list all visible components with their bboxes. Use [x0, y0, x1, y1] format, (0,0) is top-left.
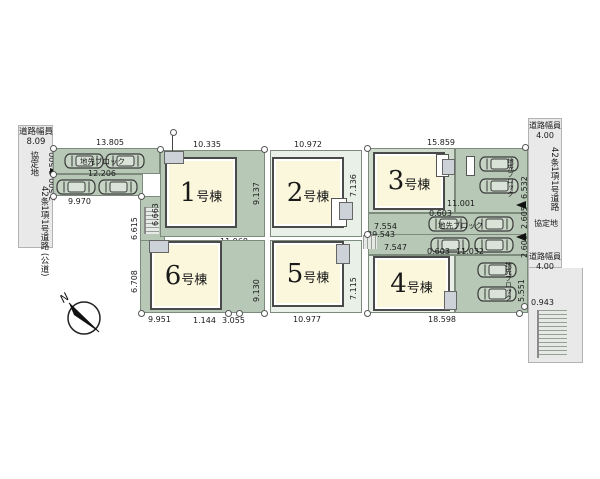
building-5-label: 5 号棟 [287, 261, 330, 287]
road-width-text: 道路幅員 [529, 252, 561, 261]
dim-park-top: 13.805 [96, 139, 124, 147]
survey-point [261, 310, 268, 317]
road-width-text: 道路幅員 [19, 127, 53, 137]
building-6-label: 6 号棟 [165, 263, 208, 289]
dim-3055: 3.055 [222, 317, 245, 325]
building-1: 1 号棟 [165, 157, 237, 228]
building-1-label: 1 号棟 [180, 180, 223, 206]
dim-9130: 9.130 [253, 272, 261, 302]
survey-point [138, 193, 145, 200]
dim-1144: 1.144 [193, 317, 216, 325]
building-3: 3 号棟 [373, 152, 445, 210]
building-1-porch [164, 151, 184, 164]
dim-park-bottom: 9.970 [68, 198, 91, 206]
dim-11001: 11.001 [447, 200, 475, 208]
building-5: 5 号棟 [272, 241, 344, 307]
dim-lot3-top: 15.859 [427, 139, 455, 147]
building-6-suffix: 号棟 [181, 274, 207, 287]
dim-6663: 6.663 [152, 196, 160, 226]
building-5-number: 5 [287, 261, 304, 287]
dim-park-mid: 12.206 [88, 170, 116, 178]
block-label-park: 地先ブロック [80, 158, 125, 166]
car-icon [479, 154, 519, 174]
road-left-name-suffix: (公道) [39, 253, 49, 277]
dim-lot2-top: 10.972 [294, 141, 322, 149]
stairs-hatch-right [537, 310, 567, 358]
compass-icon: N [58, 288, 106, 340]
building-3-step [442, 159, 455, 175]
dim-6532: 6.532 [521, 155, 529, 199]
survey-point [261, 146, 268, 153]
survey-point [521, 303, 528, 310]
utility-pole-top [170, 129, 177, 136]
building-1-number: 1 [180, 180, 197, 206]
building-4-label: 4 号棟 [390, 271, 433, 297]
dim-6615: 6.615 [131, 210, 139, 240]
building-6-porch [149, 240, 169, 253]
building-3-number: 3 [388, 168, 405, 194]
building-4-step [444, 291, 457, 310]
building-2-label: 2 号棟 [287, 180, 330, 206]
building-6-number: 6 [165, 263, 182, 289]
dim-7136: 7.136 [350, 165, 358, 197]
dim-lot5-bottom: 10.977 [293, 316, 321, 324]
dim-0603-a: 0.603 [429, 210, 452, 218]
dim-6708: 6.708 [131, 257, 139, 293]
road-width-text: 道路幅員 [529, 121, 561, 130]
car-icon [477, 260, 517, 280]
block-label-right-bottom: 地先ブロック [503, 262, 510, 301]
building-3-label: 3 号棟 [388, 168, 431, 194]
car-icon [56, 178, 96, 196]
dim-lot4-bottom: 18.598 [428, 316, 456, 324]
shed-outline [466, 156, 475, 176]
road-right-name: 42条1項1号道路 [534, 147, 558, 219]
boundary-arrow-icon [516, 233, 526, 241]
survey-point [50, 193, 57, 200]
survey-point [157, 146, 164, 153]
building-5-step [336, 244, 350, 264]
building-3-suffix: 号棟 [404, 179, 430, 192]
dim-9137: 9.137 [253, 175, 261, 205]
building-5-suffix: 号棟 [303, 272, 329, 285]
building-1-suffix: 号棟 [196, 191, 222, 204]
dim-7115: 7.115 [350, 268, 358, 300]
road-left-name: 42条1項1号道路 (公道) [22, 186, 48, 258]
building-2-suffix: 号棟 [303, 191, 329, 204]
car-icon [477, 284, 517, 304]
survey-point [364, 145, 371, 152]
survey-point [516, 310, 523, 317]
road-left-width-label: 道路幅員 8.09 [17, 127, 55, 147]
building-4: 4 号棟 [373, 256, 450, 311]
survey-point [236, 310, 243, 317]
building-2-step [339, 202, 353, 220]
road-right-agreement-label: 協定地 [534, 220, 558, 228]
dim-0943: 0.943 [531, 299, 554, 307]
road-left-agreement-label: 協定地 [28, 151, 38, 177]
building-4-suffix: 号棟 [407, 282, 433, 295]
building-4-number: 4 [390, 271, 407, 297]
dim-5551: 5.551 [518, 275, 526, 302]
site-plan: 道路幅員 8.09 協定地 42条1項1号道路 (公道) 2.500 2.500… [0, 0, 600, 479]
block-label-middle: 地先ブロック [438, 222, 483, 230]
dim-lot1-top: 10.335 [193, 141, 221, 149]
boundary-arrow-icon [516, 201, 526, 209]
road-width-value: 4.00 [536, 131, 554, 140]
car-icon [98, 178, 138, 196]
building-2-number: 2 [287, 180, 304, 206]
survey-point [225, 310, 232, 317]
survey-point [50, 145, 57, 152]
survey-point [138, 310, 145, 317]
car-icon [479, 176, 519, 196]
road-width-value: 4.00 [536, 262, 554, 271]
dim-7547: 7.547 [384, 244, 407, 252]
block-label-right-top: 地先ブロック [505, 158, 512, 197]
survey-point [522, 144, 529, 151]
survey-point [364, 231, 371, 238]
dim-lot6-bottom: 9.951 [148, 316, 171, 324]
survey-point [50, 171, 57, 178]
road-width-value: 8.09 [27, 137, 46, 147]
road-right-width-label2: 道路幅員 4.00 [525, 252, 565, 271]
road-right-width-label: 道路幅員 4.00 [525, 121, 565, 140]
survey-point [364, 310, 371, 317]
